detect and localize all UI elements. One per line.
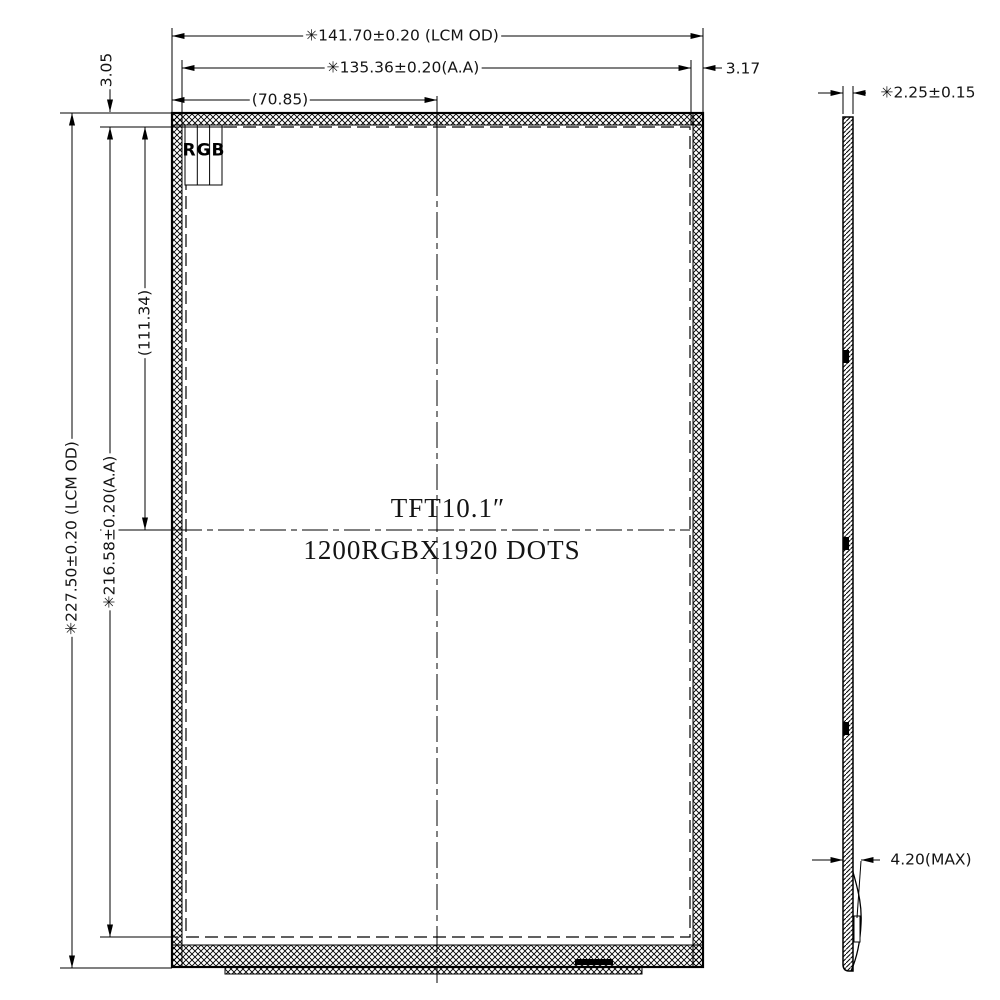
bottom-lip xyxy=(225,967,642,974)
dim-max-thickness: 4.20(MAX) xyxy=(888,851,973,868)
dim-top-margin: 3.05 xyxy=(98,51,115,90)
side-bulge-detail xyxy=(854,916,860,942)
dim-aa-height: ✳216.58±0.20(A.A) xyxy=(101,454,118,611)
dim-half-height: (111.34) xyxy=(136,288,153,358)
dim-thickness: ✳2.25±0.15 xyxy=(879,84,978,101)
side-mark-2 xyxy=(844,537,850,550)
dim-right-margin: 3.17 xyxy=(724,60,763,77)
side-mark-1 xyxy=(844,350,850,363)
bezel-right xyxy=(693,113,703,967)
lcd-outline-drawing: ✳141.70±0.20 (LCM OD) ✳135.36±0.20(A.A) … xyxy=(0,0,1000,1000)
resolution-label: 1200RGBX1920 DOTS xyxy=(301,536,582,566)
bottom-connector-mark xyxy=(575,959,613,965)
side-mark-3 xyxy=(844,722,850,735)
rgb-label: RGB xyxy=(180,142,227,161)
dim-lcm-width: ✳141.70±0.20 (LCM OD) xyxy=(303,27,501,44)
screen-size-label: TFT10.1″ xyxy=(389,494,508,524)
side-view xyxy=(812,86,880,971)
dim-lcm-height: ✳227.50±0.20 (LCM OD) xyxy=(63,439,80,637)
dim-half-width: (70.85) xyxy=(250,91,310,108)
dim-aa-width: ✳135.36±0.20(A.A) xyxy=(325,59,482,76)
bezel-left xyxy=(172,113,182,967)
